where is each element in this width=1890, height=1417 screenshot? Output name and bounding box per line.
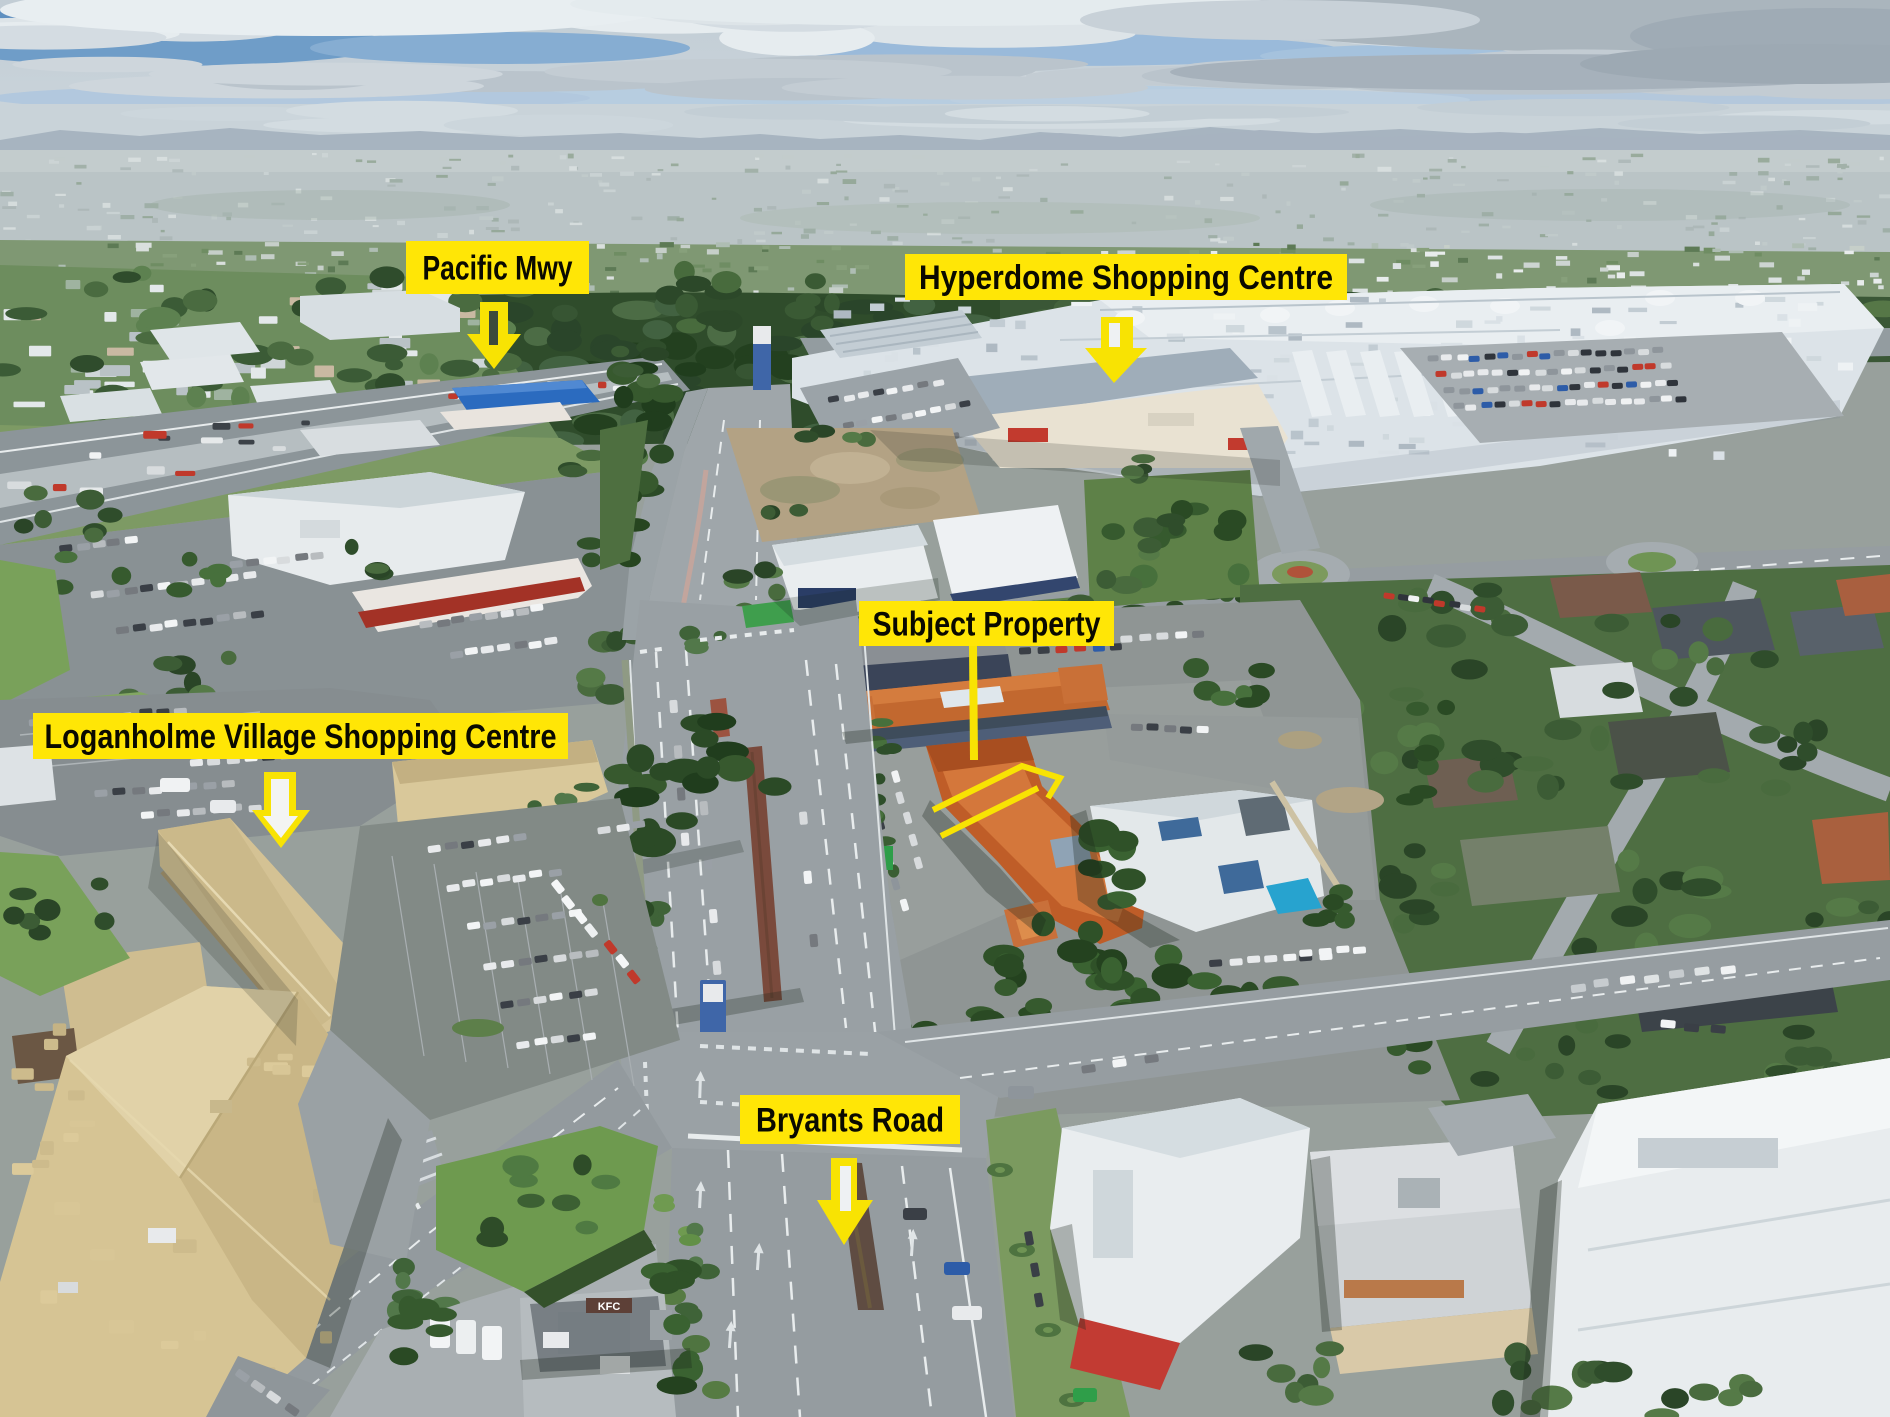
svg-text:Subject Property: Subject Property xyxy=(873,606,1101,644)
svg-text:Loganholme Village Shopping Ce: Loganholme Village Shopping Centre xyxy=(45,718,557,756)
svg-text:KFC: KFC xyxy=(598,1301,621,1313)
svg-text:Bryants Road: Bryants Road xyxy=(756,1102,944,1140)
svg-text:Hyperdome Shopping Centre: Hyperdome Shopping Centre xyxy=(919,259,1333,297)
svg-text:Pacific Mwy: Pacific Mwy xyxy=(423,250,573,288)
